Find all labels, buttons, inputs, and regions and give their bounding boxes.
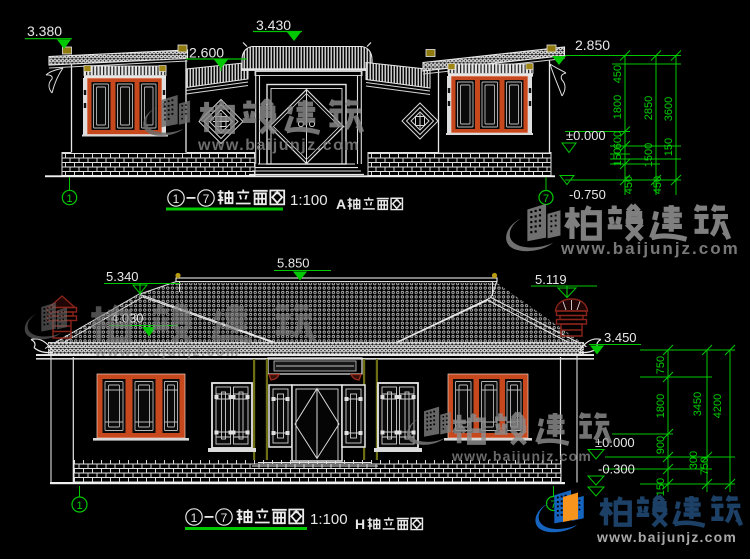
svg-text:3.450: 3.450 <box>604 330 637 345</box>
svg-text:-0.750: -0.750 <box>569 187 606 202</box>
svg-text:4200: 4200 <box>712 394 724 418</box>
svg-text:7: 7 <box>203 192 210 206</box>
svg-text:900: 900 <box>655 436 667 454</box>
svg-text:A: A <box>336 196 346 212</box>
svg-text:600: 600 <box>612 131 624 149</box>
svg-text:1500: 1500 <box>643 143 655 167</box>
svg-text:1:100: 1:100 <box>290 192 328 209</box>
svg-text:5.850: 5.850 <box>277 256 310 271</box>
svg-text:±0.000: ±0.000 <box>595 435 635 450</box>
svg-text:150: 150 <box>663 138 675 156</box>
svg-text:H: H <box>355 516 365 532</box>
svg-text:www.baijunjz.com: www.baijunjz.com <box>596 529 737 545</box>
svg-text:1:100: 1:100 <box>310 511 348 528</box>
svg-text:150: 150 <box>612 148 624 166</box>
svg-text:750: 750 <box>699 457 711 475</box>
svg-text:3600: 3600 <box>663 97 675 121</box>
svg-text:1800: 1800 <box>655 394 667 418</box>
svg-text:www.baijunjz.com: www.baijunjz.com <box>197 137 360 154</box>
svg-text:7: 7 <box>543 193 549 205</box>
svg-text:450: 450 <box>623 176 635 194</box>
svg-text:2850: 2850 <box>643 96 655 120</box>
svg-text:-0.300: -0.300 <box>598 462 635 477</box>
svg-text:1: 1 <box>191 511 198 525</box>
svg-text:1: 1 <box>76 500 82 512</box>
svg-text:1: 1 <box>173 192 180 206</box>
svg-text:450: 450 <box>612 65 624 83</box>
svg-text:www.baijunjz.com: www.baijunjz.com <box>560 239 740 258</box>
svg-text:2.850: 2.850 <box>575 37 610 53</box>
svg-text:±0.000: ±0.000 <box>566 128 606 143</box>
svg-text:750: 750 <box>655 356 667 374</box>
svg-text:5.340: 5.340 <box>106 269 139 284</box>
svg-text:2.600: 2.600 <box>189 45 224 61</box>
svg-text:3.430: 3.430 <box>256 17 291 33</box>
svg-text:www.baijunjz.com: www.baijunjz.com <box>94 343 240 359</box>
svg-text:5.119: 5.119 <box>535 272 567 287</box>
svg-text:3.380: 3.380 <box>27 23 62 39</box>
svg-text:3450: 3450 <box>692 392 704 416</box>
svg-text:7: 7 <box>221 511 228 525</box>
svg-text:150: 150 <box>655 478 667 496</box>
svg-text:1800: 1800 <box>612 95 624 119</box>
svg-text:450: 450 <box>652 176 664 194</box>
svg-text:www.baijunjz.com: www.baijunjz.com <box>451 448 592 464</box>
svg-text:1: 1 <box>66 193 72 205</box>
